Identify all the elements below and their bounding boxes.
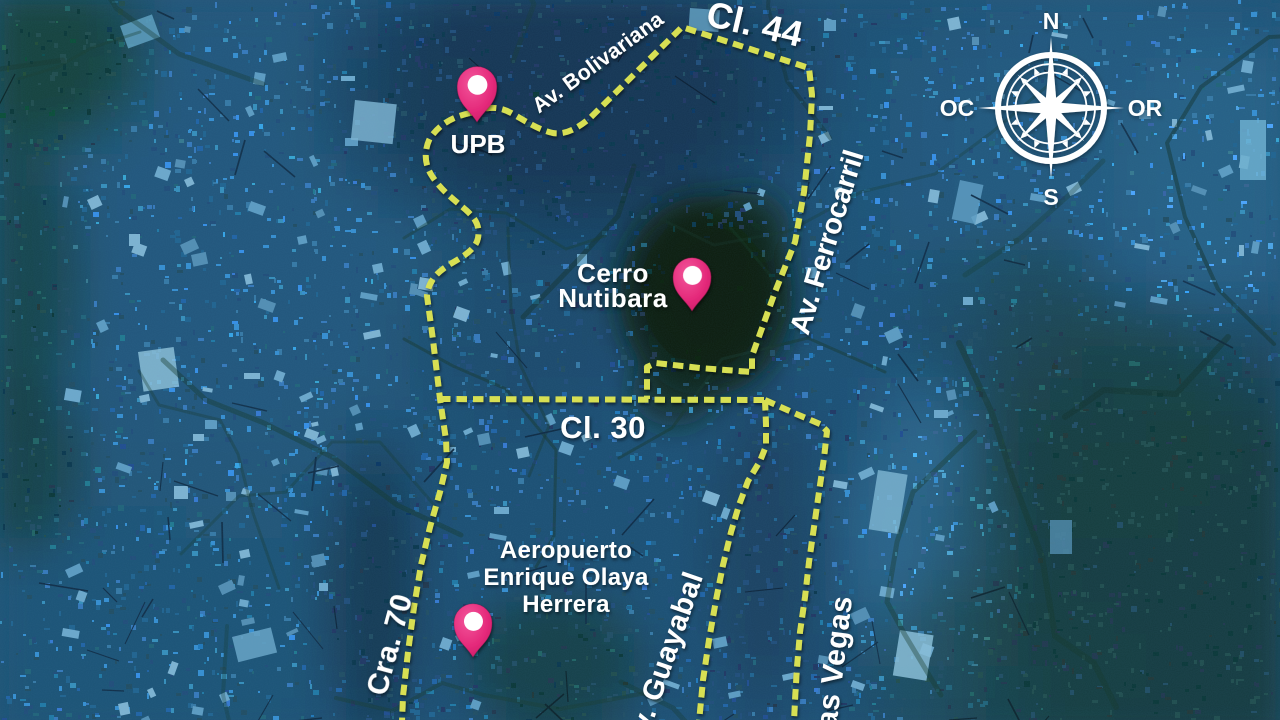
svg-text:OC: OC (940, 95, 975, 121)
svg-text:Cl. 30: Cl. 30 (560, 410, 646, 445)
svg-text:S: S (1043, 184, 1058, 210)
svg-text:Herrera: Herrera (522, 591, 610, 618)
svg-text:N: N (1043, 8, 1060, 34)
svg-text:Nutibara: Nutibara (558, 283, 668, 313)
svg-text:UPB: UPB (451, 129, 506, 159)
svg-text:Aeropuerto: Aeropuerto (500, 537, 632, 564)
svg-text:Enrique Olaya: Enrique Olaya (483, 564, 649, 591)
svg-text:OR: OR (1128, 95, 1163, 121)
